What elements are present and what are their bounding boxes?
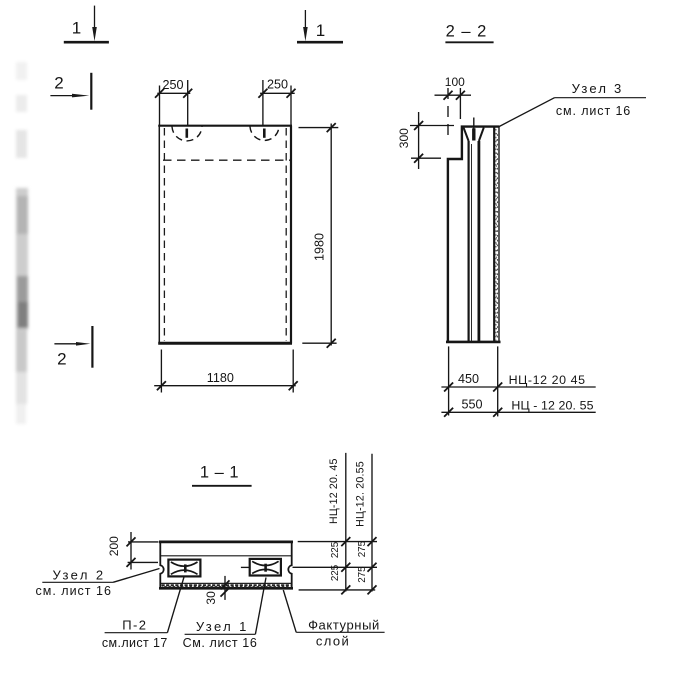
svg-text:275: 275 [357, 540, 368, 557]
svg-text:1: 1 [72, 19, 81, 38]
svg-text:30: 30 [204, 591, 218, 605]
svg-text:1 – 1: 1 – 1 [200, 464, 239, 482]
svg-text:550: 550 [461, 398, 482, 412]
svg-text:200: 200 [107, 536, 121, 556]
svg-text:450: 450 [458, 372, 479, 386]
svg-text:НЦ - 12 20. 55: НЦ - 12 20. 55 [511, 399, 593, 413]
svg-text:НЦ-12 20 45: НЦ-12 20 45 [509, 373, 586, 387]
svg-text:2: 2 [57, 350, 66, 369]
svg-text:Узел 1: Узел 1 [196, 619, 249, 634]
svg-text:Фактурный: Фактурный [308, 618, 380, 633]
svg-text:1180: 1180 [207, 371, 234, 385]
svg-text:См. лист 16: См. лист 16 [183, 636, 258, 650]
svg-text:100: 100 [445, 75, 465, 89]
svg-text:см.лист 17: см.лист 17 [102, 636, 168, 650]
svg-text:Узел 2: Узел 2 [53, 568, 106, 583]
svg-text:НЦ-12. 20.55: НЦ-12. 20.55 [355, 461, 367, 527]
svg-text:НЦ-12 20. 45: НЦ-12 20. 45 [328, 458, 340, 524]
svg-text:250: 250 [162, 78, 183, 92]
svg-text:Узел 3: Узел 3 [572, 81, 624, 96]
svg-text:П-2: П-2 [122, 618, 147, 633]
svg-text:слой: слой [316, 634, 350, 649]
svg-text:225: 225 [330, 564, 341, 581]
svg-text:см. лист 16: см. лист 16 [35, 584, 111, 598]
svg-text:см. лист 16: см. лист 16 [556, 104, 631, 118]
svg-text:275: 275 [357, 566, 368, 583]
svg-text:250: 250 [267, 78, 288, 92]
svg-text:2 – 2: 2 – 2 [446, 23, 488, 41]
svg-text:1: 1 [316, 21, 325, 40]
svg-text:300: 300 [397, 128, 411, 148]
svg-text:225: 225 [330, 541, 341, 558]
svg-text:2: 2 [54, 74, 63, 93]
svg-text:1980: 1980 [313, 233, 327, 261]
